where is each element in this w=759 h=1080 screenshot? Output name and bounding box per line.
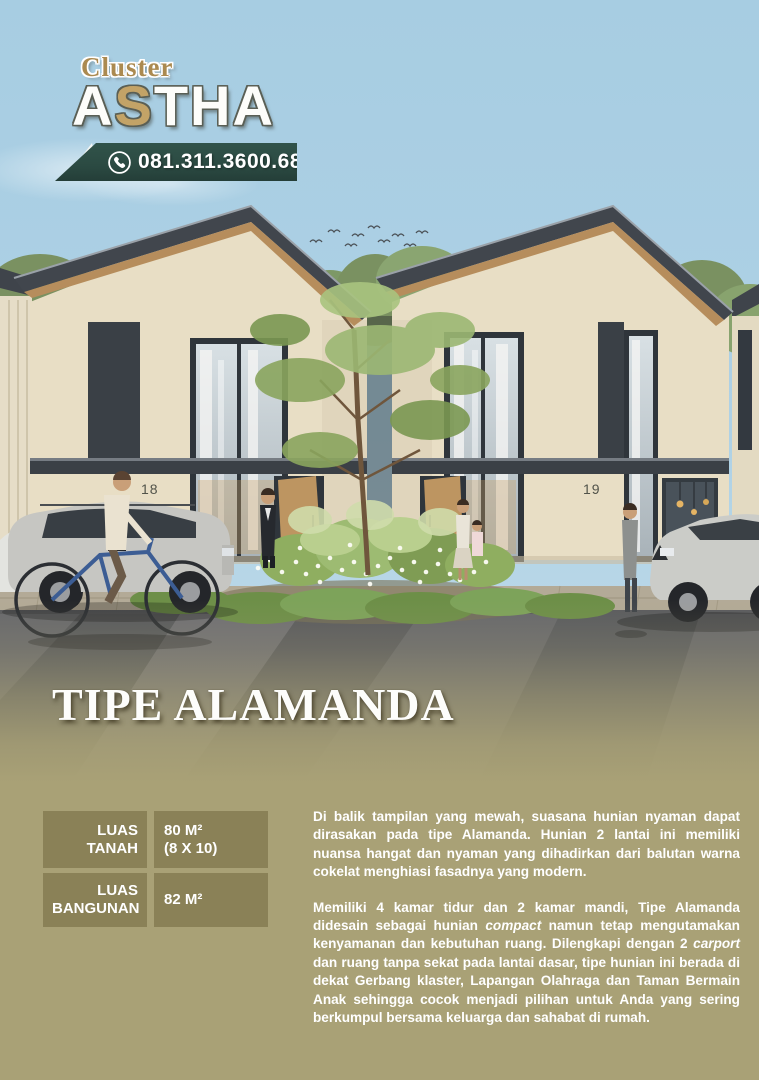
- spec-table: LUAS TANAH 80 M² (8 X 10) LUAS BANGUNAN …: [43, 811, 268, 927]
- logo-astha-text: ASTHA: [72, 78, 275, 134]
- spec-label-luas-tanah: LUAS TANAH: [43, 811, 147, 868]
- logo-letter: A: [72, 74, 114, 137]
- house-number-19: 19: [583, 481, 601, 497]
- page-title: TIPE ALAMANDA: [52, 678, 455, 731]
- logo-letters: THA: [154, 74, 275, 137]
- description-paragraph: Di balik tampilan yang mewah, suasana hu…: [313, 808, 740, 882]
- logo-gold-s: S: [114, 74, 153, 137]
- spec-label-luas-bangunan: LUAS BANGUNAN: [43, 873, 147, 927]
- man-standing-left: [260, 488, 276, 568]
- birds: [310, 226, 428, 246]
- description-paragraph: Memiliki 4 kamar tidur dan 2 kamar mandi…: [313, 899, 740, 1028]
- spec-value-line1: 82 M²: [164, 891, 258, 909]
- description: Di balik tampilan yang mewah, suasana hu…: [313, 808, 740, 1027]
- spec-value-luas-bangunan: 82 M²: [154, 873, 268, 927]
- phone-banner[interactable]: 081.311.3600.68: [55, 143, 297, 181]
- spec-value-line1: 80 M²: [164, 822, 258, 840]
- spec-value-luas-tanah: 80 M² (8 X 10): [154, 811, 268, 868]
- flyer-poster: Cluster ASTHA 081.311.3600.68: [0, 0, 759, 1080]
- phone-icon: [107, 150, 132, 175]
- house-number-18: 18: [141, 481, 159, 497]
- spec-value-line2: (8 X 10): [164, 840, 258, 858]
- phone-number: 081.311.3600.68: [138, 150, 302, 174]
